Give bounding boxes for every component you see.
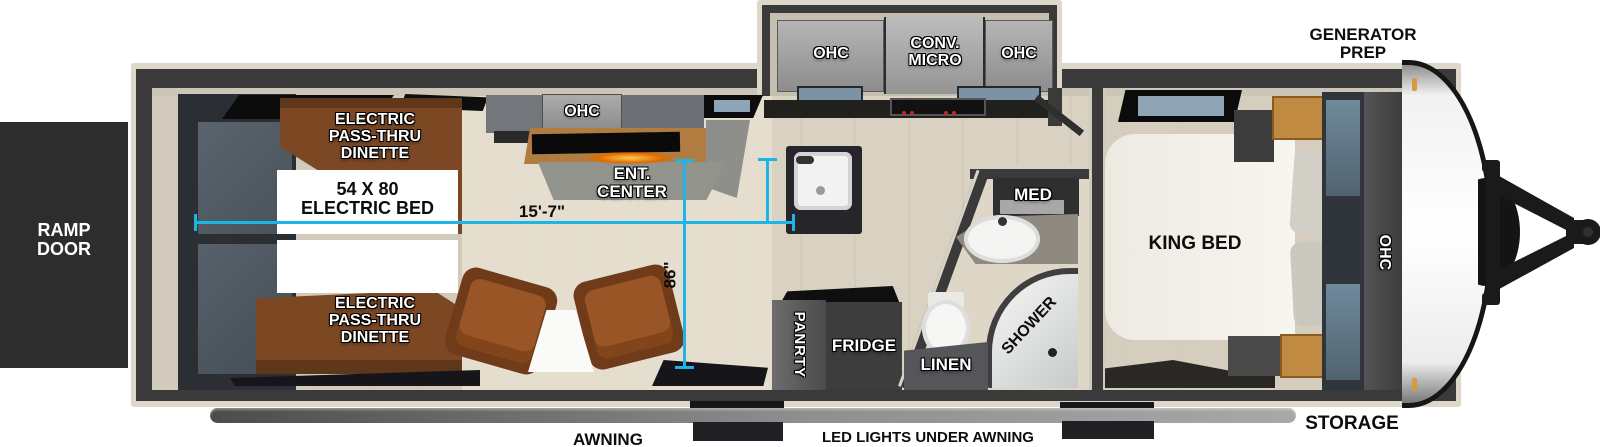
ramp-door-label: RAMP DOOR (18, 221, 110, 259)
kitchen-conv-micro-label: CONV. MICRO (886, 36, 984, 70)
nightstand-top-dark (1234, 110, 1274, 162)
electric-bed-label: ELECTRIC BED (277, 199, 458, 218)
clearance-light-bottom (1412, 378, 1417, 391)
electric-bed-size: 54 X 80 (277, 180, 458, 199)
fireplace-glow (588, 152, 672, 164)
height-dim-tick-top (675, 159, 694, 162)
wardrobe-glass-upper (1326, 100, 1360, 196)
length-dim-tick-left (194, 214, 197, 231)
dinette-bottom-label: ELECTRIC PASS-THRU DINETTE (300, 296, 450, 346)
electric-bed-box-lower (277, 240, 458, 293)
kitchen-ohc-left-label: OHC (779, 46, 883, 63)
entry-step-lower-right (1062, 421, 1154, 439)
awning-label: AWNING (560, 431, 656, 447)
skylight-kitchen (714, 100, 750, 112)
pantry-label: PANRTY (791, 312, 807, 379)
galley-dim-tick (758, 158, 777, 161)
bedroom-ohc-label: OHC (1364, 224, 1404, 280)
sink-faucet (796, 156, 814, 164)
bathroom-faucet (998, 217, 1007, 226)
galley-dim-stub (766, 160, 769, 223)
length-dimension-label: 15'-7" (506, 203, 578, 221)
nightstand-top (1272, 96, 1324, 140)
hitch-tongue (1478, 160, 1600, 305)
living-ohc-cabinet-left (486, 95, 542, 133)
nightstand-bottom-dark (1228, 336, 1280, 376)
tv (532, 132, 680, 155)
bedroom-wall (1089, 88, 1105, 390)
led-lights-label: LED LIGHTS UNDER AWNING (820, 430, 1036, 446)
length-dimension-line (196, 221, 795, 224)
king-bed-label: KING BED (1128, 234, 1262, 254)
fridge: FRIDGE (826, 302, 902, 390)
clearance-light-top (1412, 78, 1417, 91)
electric-bed-box: 54 X 80 ELECTRIC BED (277, 170, 458, 234)
wardrobe-glass-lower (1326, 284, 1360, 380)
linen-label: LINEN (906, 356, 986, 374)
ent-center-label: ENT. CENTER (566, 165, 698, 201)
entry-step-lower-left (693, 422, 783, 441)
skylight-bedroom (1138, 96, 1224, 116)
height-dim-tick-bottom (675, 366, 694, 369)
pantry-cabinet: PANRTY (772, 300, 826, 390)
shower-label: SHOWER (978, 294, 1082, 358)
fridge-label: FRIDGE (832, 337, 896, 355)
length-dim-tick-right (792, 214, 795, 231)
dinette-top-label: ELECTRIC PASS-THRU DINETTE (300, 112, 450, 162)
nightstand-bottom (1280, 334, 1326, 378)
floorplan-diagram: RAMP DOOR OHC CONV. MICRO OHC (0, 0, 1600, 447)
height-dimension-label: 86" (648, 250, 692, 300)
generator-prep-label: GENERATOR PREP (1300, 26, 1426, 62)
living-ohc-label: OHC (542, 104, 622, 121)
stove-knob (902, 111, 906, 115)
med-label: MED (998, 186, 1068, 204)
living-ohc-cabinet-right (622, 95, 704, 133)
storage-label: STORAGE (1300, 414, 1404, 434)
sink-drain (816, 186, 825, 195)
kitchen-ohc-right-label: OHC (986, 46, 1052, 63)
